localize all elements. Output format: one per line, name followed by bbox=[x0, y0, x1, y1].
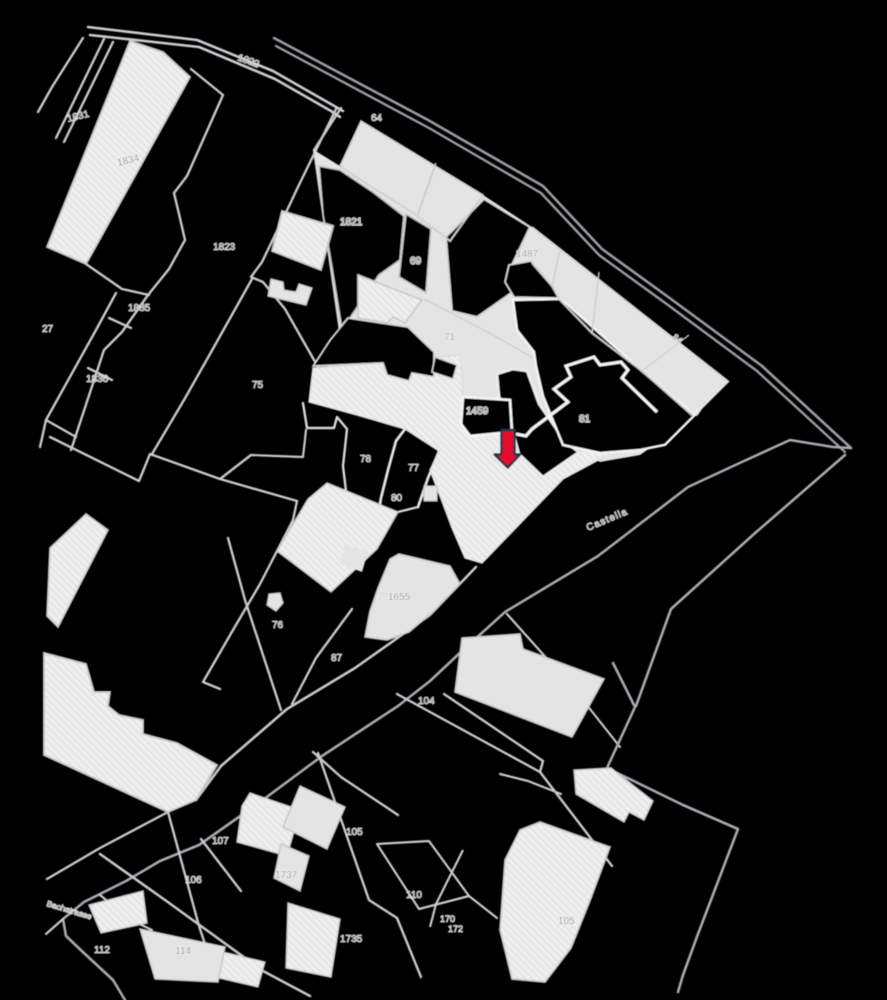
svg-text:112: 112 bbox=[94, 945, 110, 956]
svg-text:87: 87 bbox=[331, 653, 343, 664]
svg-text:172: 172 bbox=[448, 924, 463, 934]
svg-text:105: 105 bbox=[558, 916, 575, 927]
svg-text:1487: 1487 bbox=[516, 249, 539, 260]
svg-text:110: 110 bbox=[406, 890, 422, 901]
svg-text:69: 69 bbox=[410, 256, 422, 267]
svg-text:64: 64 bbox=[371, 113, 383, 124]
svg-text:1459: 1459 bbox=[466, 406, 489, 417]
svg-text:1835: 1835 bbox=[128, 303, 151, 314]
svg-text:81: 81 bbox=[579, 414, 591, 425]
svg-text:71: 71 bbox=[444, 332, 456, 343]
svg-text:106: 106 bbox=[185, 875, 202, 886]
svg-text:1737: 1737 bbox=[275, 870, 298, 881]
svg-text:78: 78 bbox=[360, 454, 372, 465]
svg-text:76: 76 bbox=[272, 620, 284, 631]
svg-text:114: 114 bbox=[175, 946, 191, 957]
svg-text:1821: 1821 bbox=[340, 217, 363, 228]
svg-text:1735: 1735 bbox=[340, 934, 363, 945]
svg-text:104: 104 bbox=[418, 696, 435, 707]
svg-text:77: 77 bbox=[408, 463, 420, 474]
svg-text:1823: 1823 bbox=[213, 242, 236, 253]
svg-text:80: 80 bbox=[391, 493, 403, 504]
svg-text:1836: 1836 bbox=[86, 374, 109, 385]
svg-text:170: 170 bbox=[440, 914, 455, 924]
svg-text:27: 27 bbox=[42, 324, 54, 335]
svg-text:75: 75 bbox=[252, 380, 264, 391]
svg-text:107: 107 bbox=[212, 836, 229, 847]
svg-text:1655: 1655 bbox=[388, 592, 411, 603]
svg-text:105: 105 bbox=[346, 827, 363, 838]
